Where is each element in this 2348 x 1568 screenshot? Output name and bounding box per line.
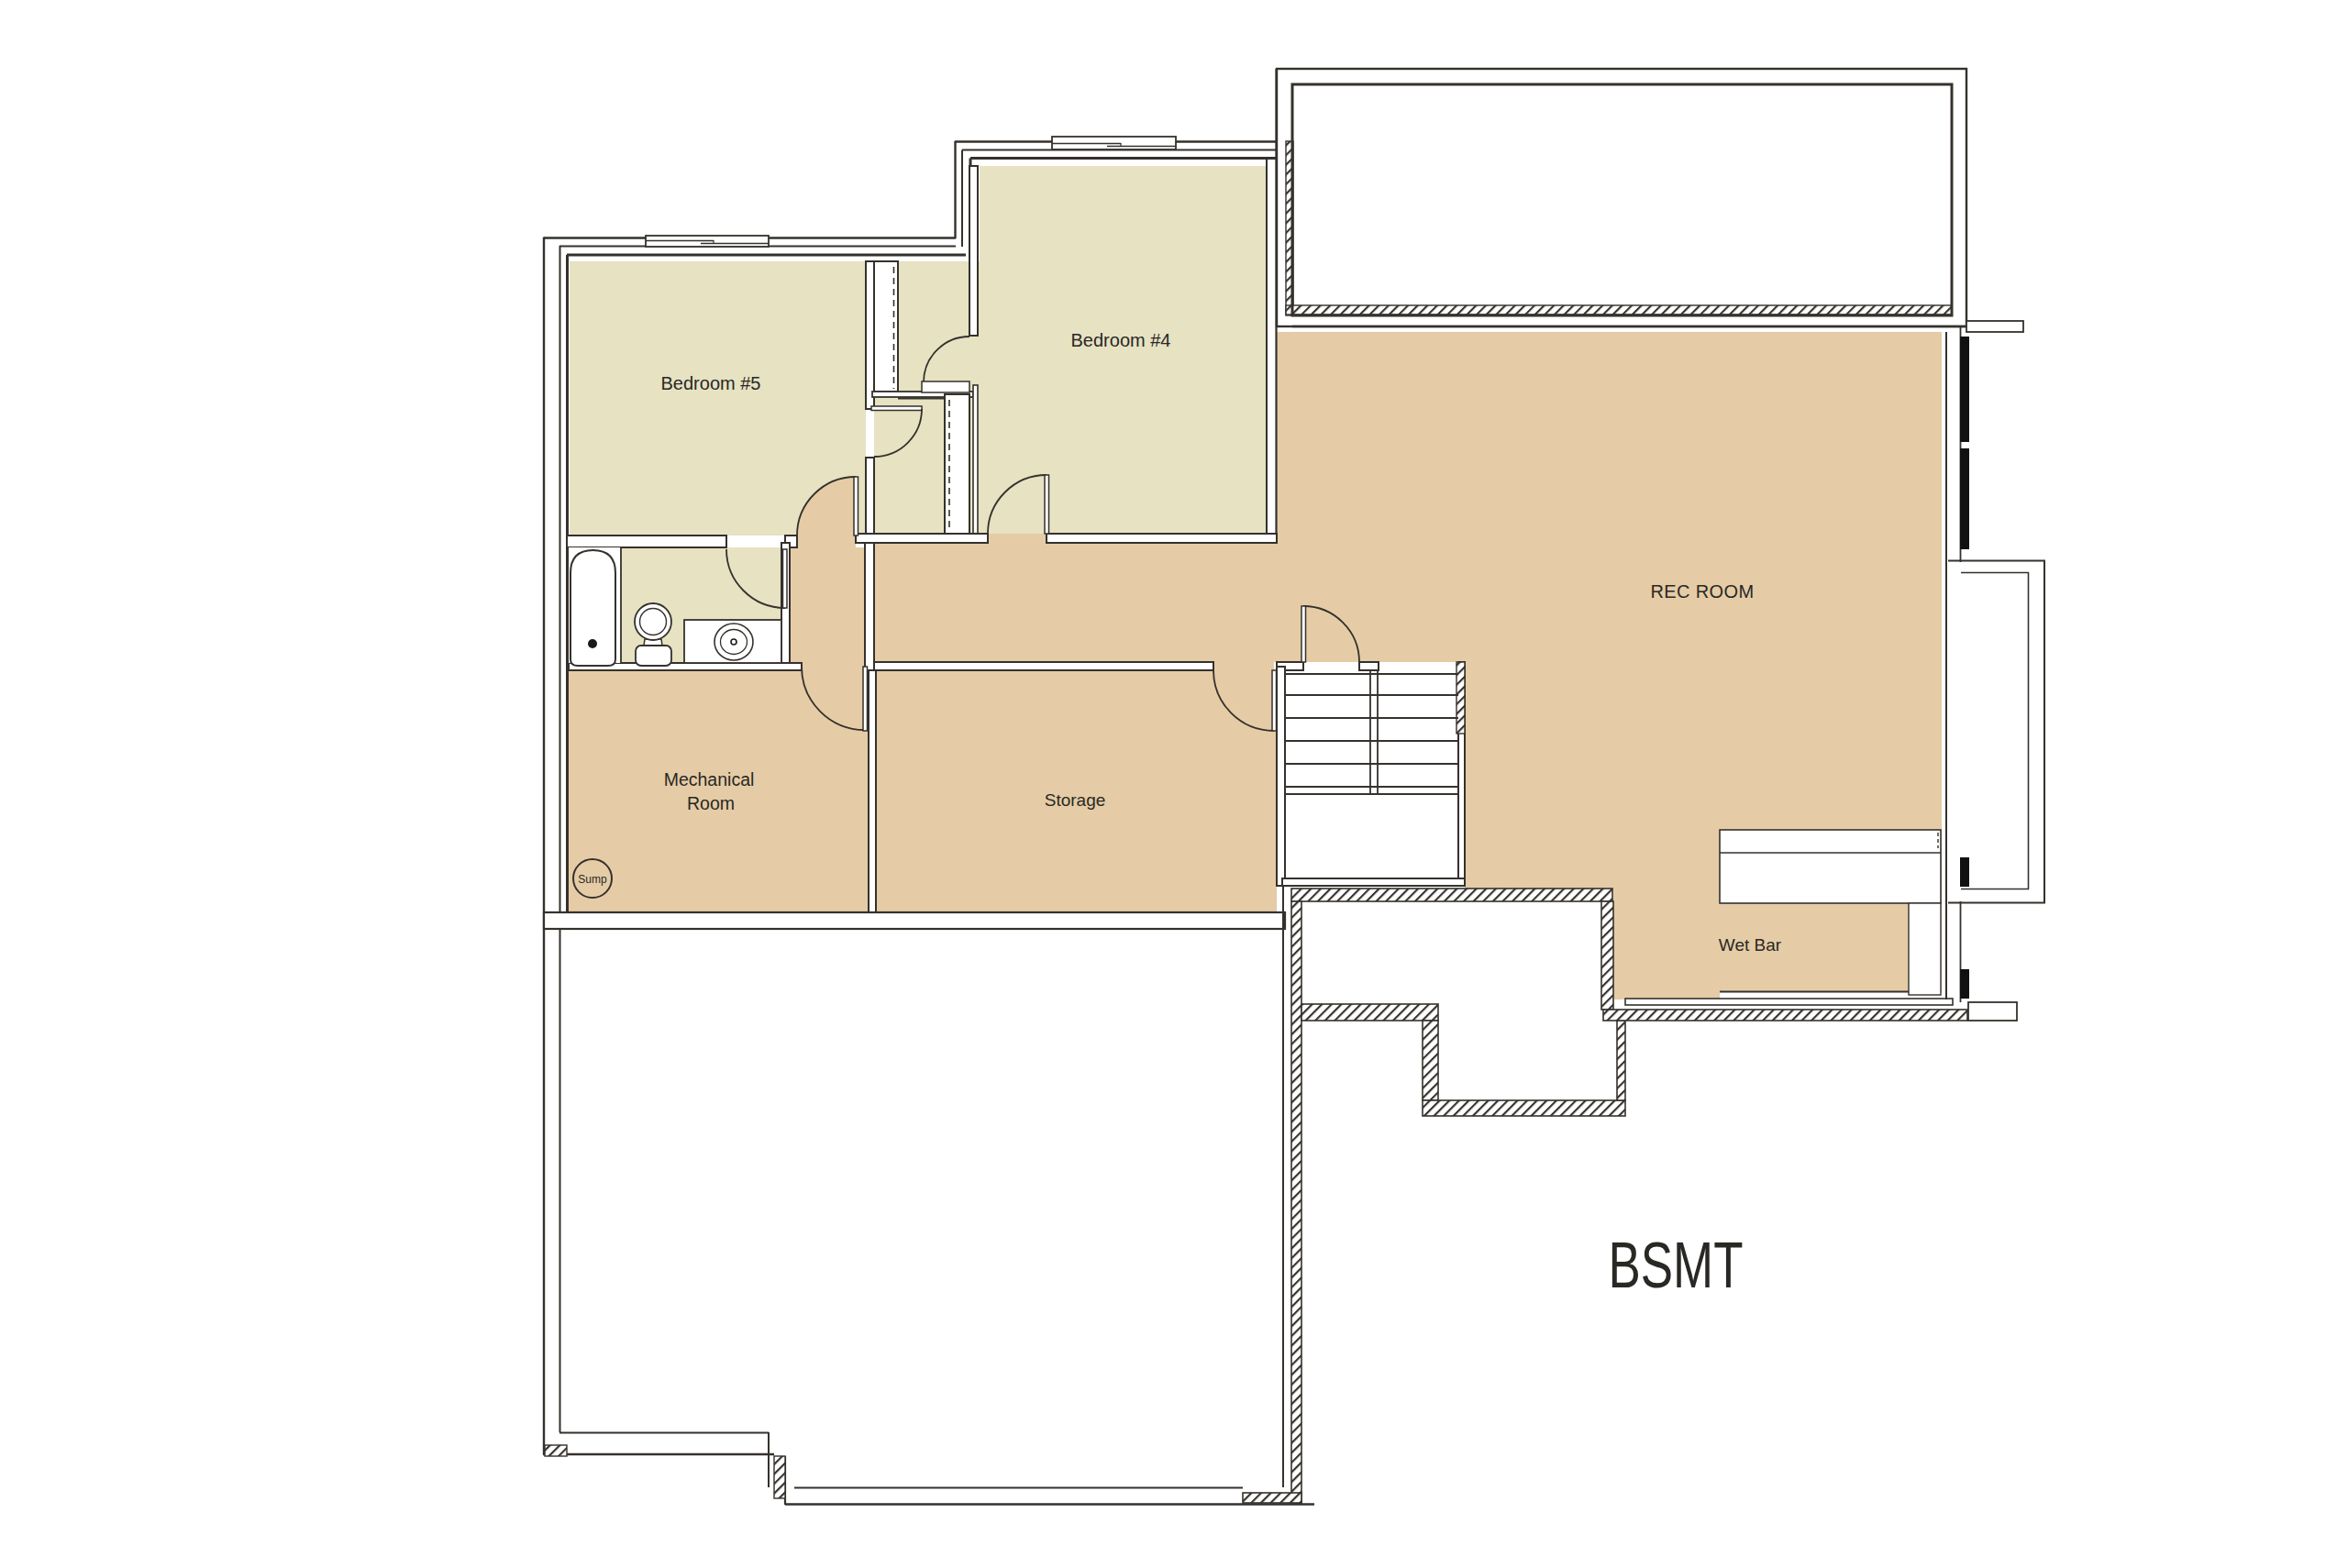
- svg-text:Bedroom #5: Bedroom #5: [661, 373, 761, 393]
- svg-text:Bedroom #4: Bedroom #4: [1071, 330, 1171, 350]
- svg-text:Sump: Sump: [578, 873, 607, 886]
- svg-text:Storage: Storage: [1045, 790, 1106, 810]
- svg-text:BSMT: BSMT: [1609, 1229, 1744, 1301]
- svg-text:Room: Room: [687, 793, 735, 813]
- svg-text:Wet Bar: Wet Bar: [1719, 935, 1782, 955]
- svg-text:REC ROOM: REC ROOM: [1650, 581, 1754, 602]
- svg-text:Mechanical: Mechanical: [664, 769, 755, 790]
